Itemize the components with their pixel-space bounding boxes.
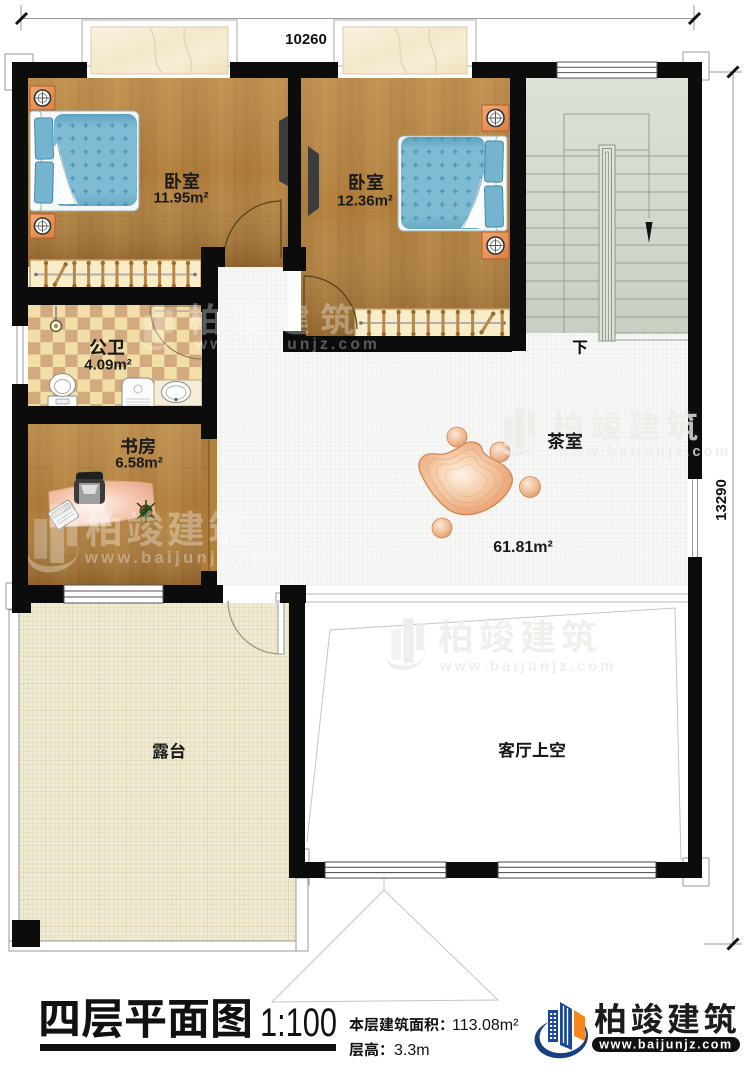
svg-text:www.baijunjz.com: www.baijunjz.com [84, 549, 282, 567]
svg-text:12.36m²: 12.36m² [337, 193, 393, 210]
svg-text:www.baijunjz.com: www.baijunjz.com [598, 1038, 732, 1052]
svg-text:11.95m²: 11.95m² [153, 190, 208, 207]
svg-text:6.58m²: 6.58m² [115, 455, 163, 472]
svg-text:1:100: 1:100 [260, 1001, 337, 1045]
svg-text:4.09m²: 4.09m² [84, 357, 132, 374]
svg-text:www.baijunjz.com: www.baijunjz.com [194, 336, 380, 353]
svg-text:61.81m²: 61.81m² [493, 539, 553, 556]
svg-text:www.baijunjz.com: www.baijunjz.com [557, 444, 731, 460]
svg-text:3.3m: 3.3m [394, 1042, 430, 1059]
svg-text:113.08m²: 113.08m² [452, 1017, 519, 1034]
svg-text:10260: 10260 [285, 31, 327, 48]
svg-text:13290: 13290 [713, 479, 730, 521]
svg-text:www.baijunjz.com: www.baijunjz.com [439, 659, 616, 675]
